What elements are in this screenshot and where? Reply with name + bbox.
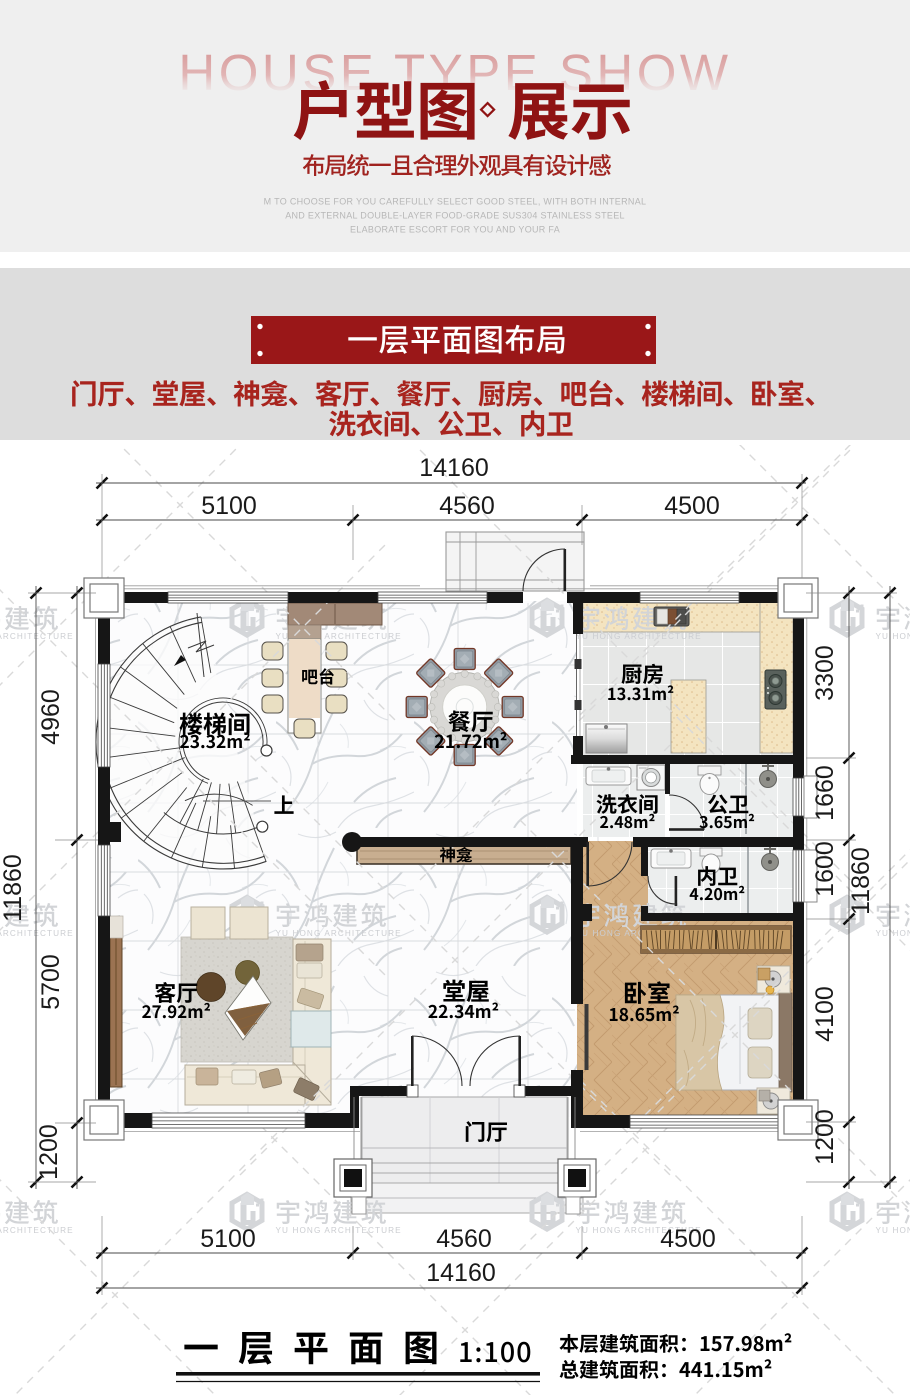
svg-text:4100: 4100 — [811, 986, 839, 1042]
svg-text:4500: 4500 — [664, 492, 720, 520]
svg-text:5700: 5700 — [37, 954, 65, 1010]
svg-text:ELABORATE ESCORT FOR YOU AND Y: ELABORATE ESCORT FOR YOU AND YOUR FA — [350, 225, 560, 235]
svg-text:3300: 3300 — [811, 645, 839, 701]
svg-text:AND EXTERNAL DOUBLE-LAYER FOOD: AND EXTERNAL DOUBLE-LAYER FOOD-GRADE SUS… — [285, 211, 625, 221]
svg-text:14160: 14160 — [419, 454, 489, 482]
svg-text:1600: 1600 — [811, 841, 839, 897]
svg-text:4500: 4500 — [660, 1225, 716, 1253]
svg-text:4960: 4960 — [37, 689, 65, 745]
svg-text:YU HONG ARCHITECTURE: YU HONG ARCHITECTURE — [0, 929, 74, 938]
svg-text:4560: 4560 — [439, 492, 495, 520]
svg-text:YU HONG ARCHITECTURE: YU HONG ARCHITECTURE — [0, 632, 74, 641]
svg-text:YU HONG ARCHITECTURE: YU HONG ARCHITECTURE — [276, 1226, 402, 1235]
svg-text:5100: 5100 — [201, 492, 257, 520]
svg-text:M TO CHOOSE FOR YOU CAREFULLY: M TO CHOOSE FOR YOU CAREFULLY SELECT GOO… — [264, 197, 647, 207]
svg-text:1660: 1660 — [811, 765, 839, 821]
svg-text:4560: 4560 — [436, 1225, 492, 1253]
svg-text:YU HONG ARCHITECTURE: YU HONG ARCHITECTURE — [0, 1226, 74, 1235]
svg-text:11860: 11860 — [847, 847, 875, 915]
svg-text:YU HONG ARCHITECTURE: YU HONG ARCHITECTURE — [576, 632, 702, 641]
svg-text:11860: 11860 — [0, 854, 27, 922]
svg-text:YU HONG ARCHITECTURE: YU HONG ARCHITECTURE — [876, 1226, 910, 1235]
svg-text:5100: 5100 — [200, 1225, 256, 1253]
svg-text:HOUSE TYPE SHOW: HOUSE TYPE SHOW — [178, 44, 731, 101]
svg-text:YU HONG ARCHITECTURE: YU HONG ARCHITECTURE — [276, 929, 402, 938]
svg-text:1200: 1200 — [811, 1109, 839, 1165]
svg-text:1200: 1200 — [35, 1124, 63, 1180]
svg-text:14160: 14160 — [426, 1259, 496, 1287]
svg-text:YU HONG ARCHITECTURE: YU HONG ARCHITECTURE — [876, 632, 910, 641]
